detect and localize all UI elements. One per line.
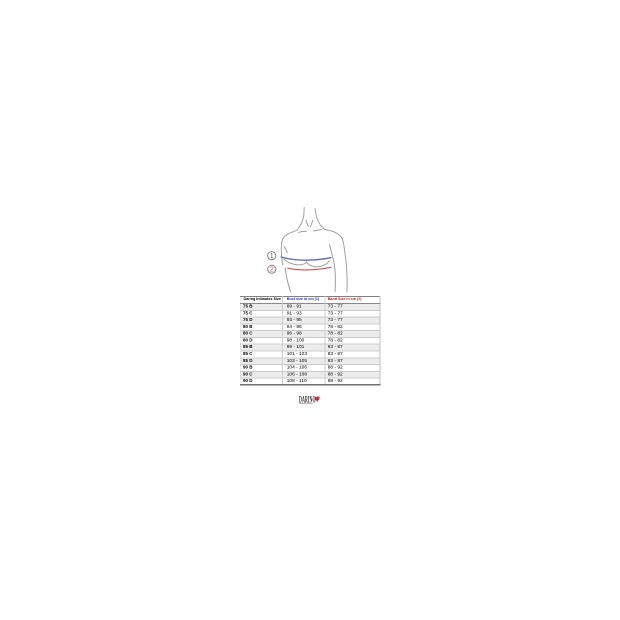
svg-text:1: 1 — [270, 253, 274, 260]
svg-text:2: 2 — [270, 267, 274, 274]
